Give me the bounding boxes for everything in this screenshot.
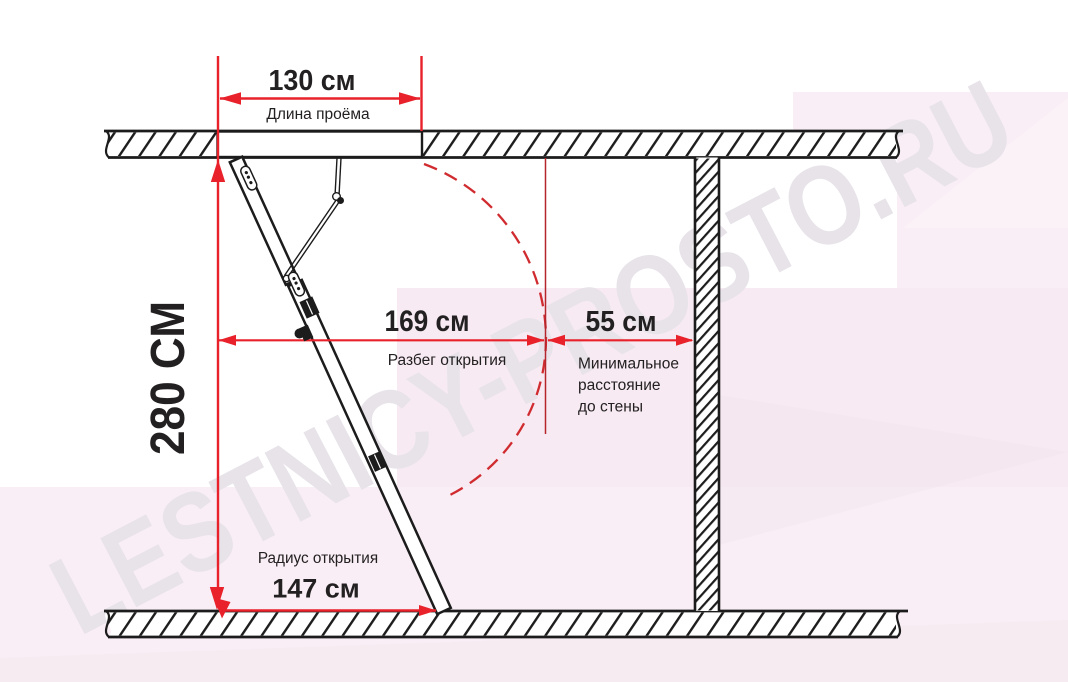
svg-text:147 см: 147 см xyxy=(272,574,360,604)
svg-text:169 см: 169 см xyxy=(385,305,470,338)
svg-text:Разбег открытия: Разбег открытия xyxy=(388,352,507,369)
svg-text:Минимальное: Минимальное xyxy=(578,356,679,373)
svg-text:280 СМ: 280 СМ xyxy=(142,301,195,455)
svg-text:расстояние: расстояние xyxy=(578,377,661,394)
svg-text:Радиус открытия: Радиус открытия xyxy=(258,550,378,567)
svg-text:Длина проёма: Длина проёма xyxy=(266,106,370,123)
svg-text:55 см: 55 см xyxy=(586,306,657,338)
svg-text:130 см: 130 см xyxy=(269,65,356,97)
svg-text:до стены: до стены xyxy=(578,399,643,416)
